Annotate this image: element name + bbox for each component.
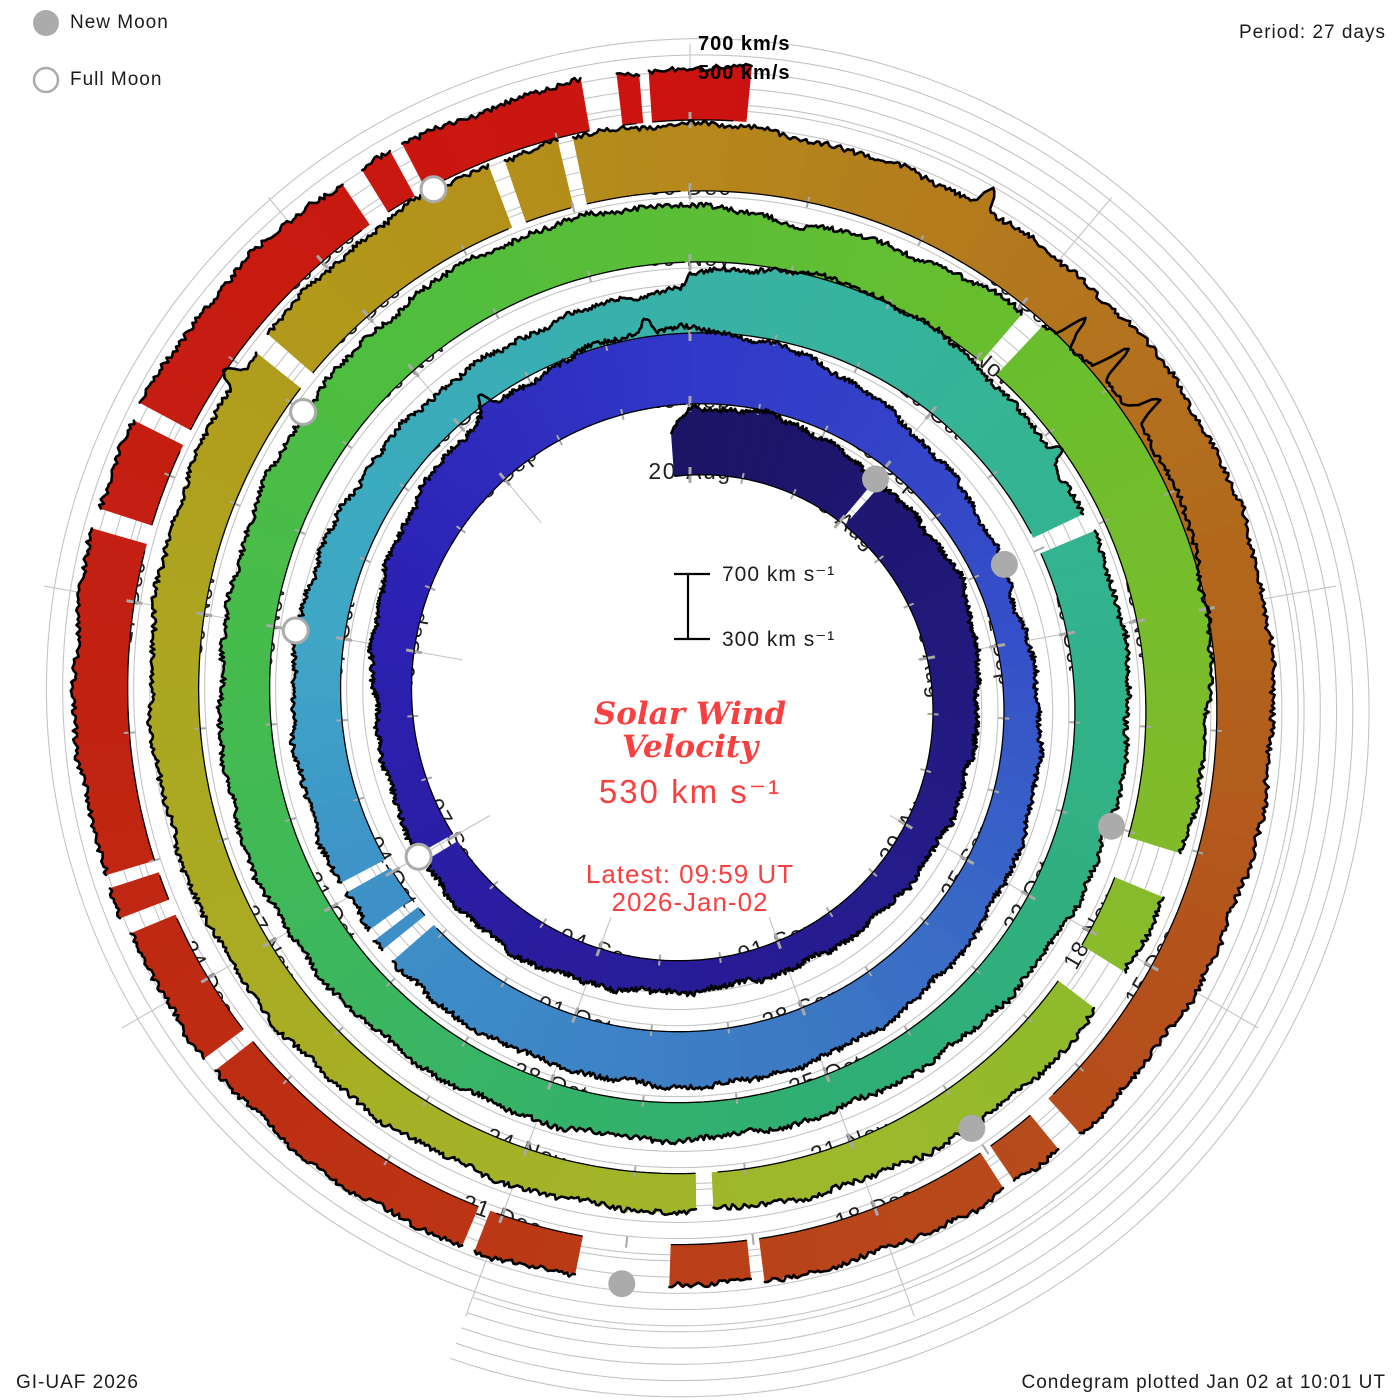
spiral-ring-band [292,697,343,725]
spiral-ring-band [931,678,981,698]
moon-legend-icons [26,2,70,102]
spiral-ring-band [74,621,131,667]
gridline-500-label: 500 km/s [698,62,791,85]
spiral-ring-band [148,688,200,726]
new-moon-marker [991,551,1018,578]
spiral-ring-band [71,664,128,707]
new-moon-marker [608,1270,635,1297]
latest-time-label: Latest: 09:59 UT [440,860,940,888]
gridline-700-label: 700 km/s [698,33,791,56]
chart-center-text: Solar Wind Velocity 530 km s⁻¹ [440,698,940,811]
legend-new-moon-label: New Moon [70,12,169,34]
new-moon-marker [1098,813,1125,840]
day-tick [752,1234,753,1245]
spiral-ring-band [663,1032,690,1090]
current-velocity-value: 530 km s⁻¹ [440,772,940,811]
full-moon-marker [291,400,316,425]
period-label: Period: 27 days [1239,22,1386,44]
spiral-ring-band [695,1100,726,1140]
spiral-ring-band [1216,680,1275,721]
legend-full-moon-label: Full Moon [70,69,162,91]
day-tick [983,1145,989,1154]
spiral-ring-band [617,73,643,125]
latest-date-label: 2026-Jan-02 [440,888,940,916]
full-moon-marker [421,177,446,202]
new-moon-marker [862,466,889,493]
velocity-scalebar [660,560,720,655]
spiral-ring-band [650,203,685,264]
spiral-ring-band [690,268,720,334]
chart-title-line1: Solar Wind [440,698,940,731]
full-moon-marker [406,844,431,869]
spiral-ring-band [1145,711,1209,748]
spiral-ring-band [690,203,724,262]
day-tick [572,202,575,213]
new-moon-icon [33,10,59,36]
full-moon-marker [283,618,308,643]
spiral-ring-band [292,669,341,697]
day-tick [626,1237,627,1248]
spiral-ring-band [217,689,271,722]
full-moon-icon [34,68,58,92]
spiral-ring-band [72,707,131,751]
spiral-ring-band [1145,676,1213,712]
spiral-ring-band [684,206,690,262]
spiral-ring-band [712,1171,731,1209]
day-tick [1034,547,1044,551]
spiral-ring-band [150,650,200,689]
scalebar-bottom-label: 300 km s⁻¹ [722,627,835,652]
new-moon-marker [958,1115,985,1142]
spiral-ring-band [670,1244,711,1287]
spiral-ring-band [723,1096,756,1136]
scalebar-top-label: 700 km s⁻¹ [722,562,835,587]
spiral-ring-band [653,120,690,192]
spiral-ring-band [220,657,271,691]
spiral-ring-band [362,151,414,212]
spiral-ring-band [1215,718,1275,761]
footer-plotted-timestamp: Condegram plotted Jan 02 at 10:01 UT [1022,1372,1386,1394]
footer-credit: GI-UAF 2026 [16,1372,139,1394]
spiral-ring-band [217,720,274,755]
spiral-ring-band [690,120,730,191]
spiral-ring-band [1074,709,1129,741]
spiral-ring-band [1074,680,1131,711]
spiral-ring-band [690,1030,717,1090]
spiral-ring-band [649,67,693,122]
spiral-ring-band [1213,639,1276,682]
condegram-page: 20-Aug23-Aug26-Aug29-Aug01-Sep04-Sep07-S… [0,0,1400,1400]
latest-reading-text: Latest: 09:59 UT 2026-Jan-02 [440,860,940,916]
chart-title-line2: Velocity [440,731,940,764]
spiral-ring-band [1003,711,1041,737]
